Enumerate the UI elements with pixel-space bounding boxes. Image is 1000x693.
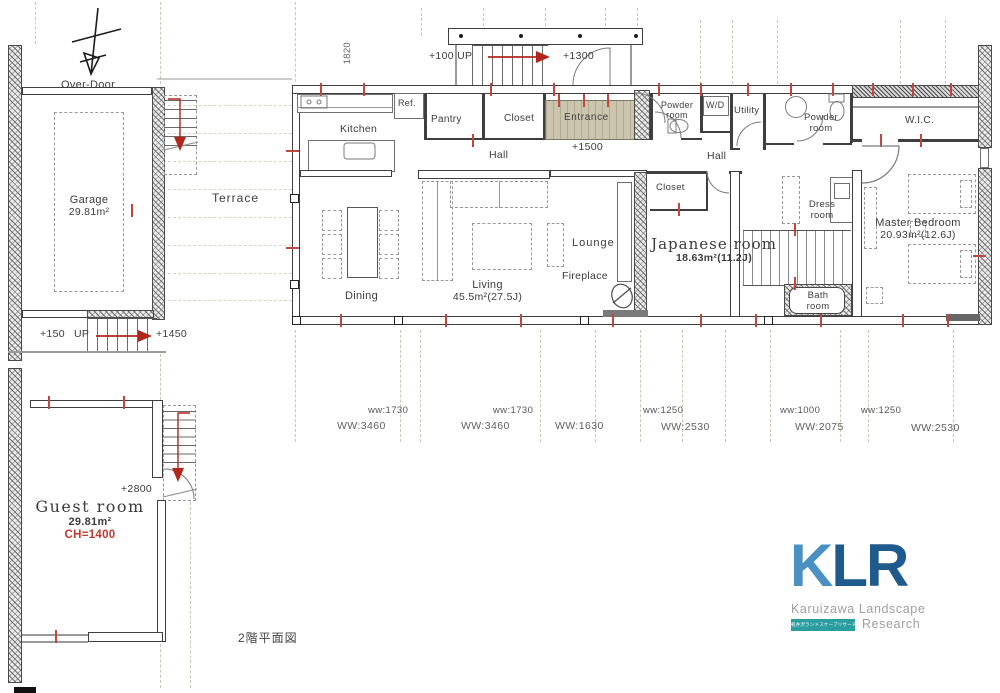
room-label-kitchen: Kitchen [340, 123, 377, 135]
japanese-area: 18.63m²(11.2J) [676, 252, 752, 264]
guest-landing-level: +2800 [121, 483, 152, 495]
room-label-ref: Ref. [398, 98, 416, 108]
room-label-guest: Guest room 29.81m² CH=1400 [20, 498, 160, 542]
dim-ww-4: WW:2530 [661, 421, 710, 433]
klr-logo-line2: Research [862, 617, 920, 631]
living-name: Living [472, 279, 503, 291]
toilet-tank [829, 94, 844, 102]
dim-ws-2: ww:1730 [493, 405, 533, 416]
master-area: 20.93m²(12.6J) [880, 229, 955, 241]
guest-ceiling-height: CH=1400 [64, 529, 115, 541]
room-label-lounge: Lounge [572, 237, 615, 249]
room-label-powder1: Powder room [655, 100, 699, 120]
living-area: 45.5m²(27.5J) [453, 291, 522, 303]
garage-up-level: +150 [40, 328, 65, 340]
klr-logo-badge: 軽井沢ランドスケープリサーチ [791, 619, 855, 631]
dim-ww-6: WW:2530 [911, 422, 960, 434]
hall-left-label: Hall [489, 149, 508, 161]
klr-logo-word: KLR [790, 536, 907, 596]
dim-1820: 1820 [342, 42, 353, 64]
room-label-terrace: Terrace [212, 191, 259, 205]
dim-ws-4: ww:1250 [643, 405, 683, 416]
porch-top-label: +1300 [563, 50, 594, 62]
dim-ww-3: WW:1630 [555, 420, 604, 432]
room-label-japanese: Japanese room 18.63m²(11.2J) [650, 236, 778, 265]
garage-top-level: +1450 [156, 328, 187, 340]
floorplan-canvas: Over-Door Garage 29.81m² Terrace 1820 +1… [0, 0, 1000, 693]
room-label-pantry: Pantry [431, 114, 462, 125]
room-label-powder2: Powder room [797, 113, 845, 134]
klr-letter-k: K [790, 532, 831, 599]
klr-letters-lr: LR [831, 532, 907, 599]
room-label-garage: Garage 29.81m² [58, 194, 120, 219]
dim-ww-1: WW:3460 [337, 420, 386, 432]
room-label-entrance: Entrance [564, 112, 609, 123]
guest-name: Guest room [35, 497, 144, 516]
room-label-living: Living 45.5m²(27.5J) [435, 279, 540, 304]
dim-ww-2: WW:3460 [461, 420, 510, 432]
room-label-closet-hall: Closet [504, 113, 534, 124]
room-label-master: Master Bedroom 20.93m²(12.6J) [862, 217, 974, 242]
north-arrow-icon [72, 8, 121, 74]
guest-area: 29.81m² [68, 516, 111, 528]
garage-up-word: UP [74, 328, 89, 340]
dim-ws-6: ww:1250 [861, 405, 901, 416]
over-door-label: Over-Door [61, 79, 115, 91]
garage-area: 29.81m² [69, 206, 110, 218]
room-label-closet-jp: Closet [656, 182, 685, 193]
room-label-wd: W/D [706, 100, 724, 110]
room-label-bath: Bath room [799, 291, 837, 312]
garage-name: Garage [70, 194, 109, 206]
klr-logo: KLR Karuizawa Landscape 軽井沢ランドスケープリサーチ R… [788, 536, 958, 646]
porch-up-label: +100 UP [429, 50, 472, 62]
room-label-dining: Dining [345, 290, 378, 302]
japanese-name: Japanese room [651, 235, 777, 253]
klr-logo-line1: Karuizawa Landscape [791, 602, 925, 616]
room-label-dress: Dress room [802, 200, 842, 221]
kitchen-sink-icon [344, 143, 375, 159]
plan-title: 2階平面図 [238, 629, 298, 646]
master-name: Master Bedroom [875, 217, 961, 229]
room-label-utility: Utility [734, 105, 759, 116]
room-label-wic: W.I.C. [905, 115, 934, 126]
stair-cut-lines [163, 142, 198, 497]
toilet-icon [670, 120, 688, 133]
dim-ww-5: WW:2075 [795, 421, 844, 433]
stair-direction-arrows [96, 51, 550, 482]
wood-stove-icon [608, 281, 635, 310]
entrance-level-label: +1500 [572, 141, 603, 153]
hall-right-label: Hall [707, 150, 726, 162]
cooktop-icon [301, 96, 327, 108]
dim-ws-5: ww:1000 [780, 405, 820, 416]
dim-ws-1: ww:1730 [368, 405, 408, 416]
room-label-fireplace: Fireplace [562, 270, 608, 282]
